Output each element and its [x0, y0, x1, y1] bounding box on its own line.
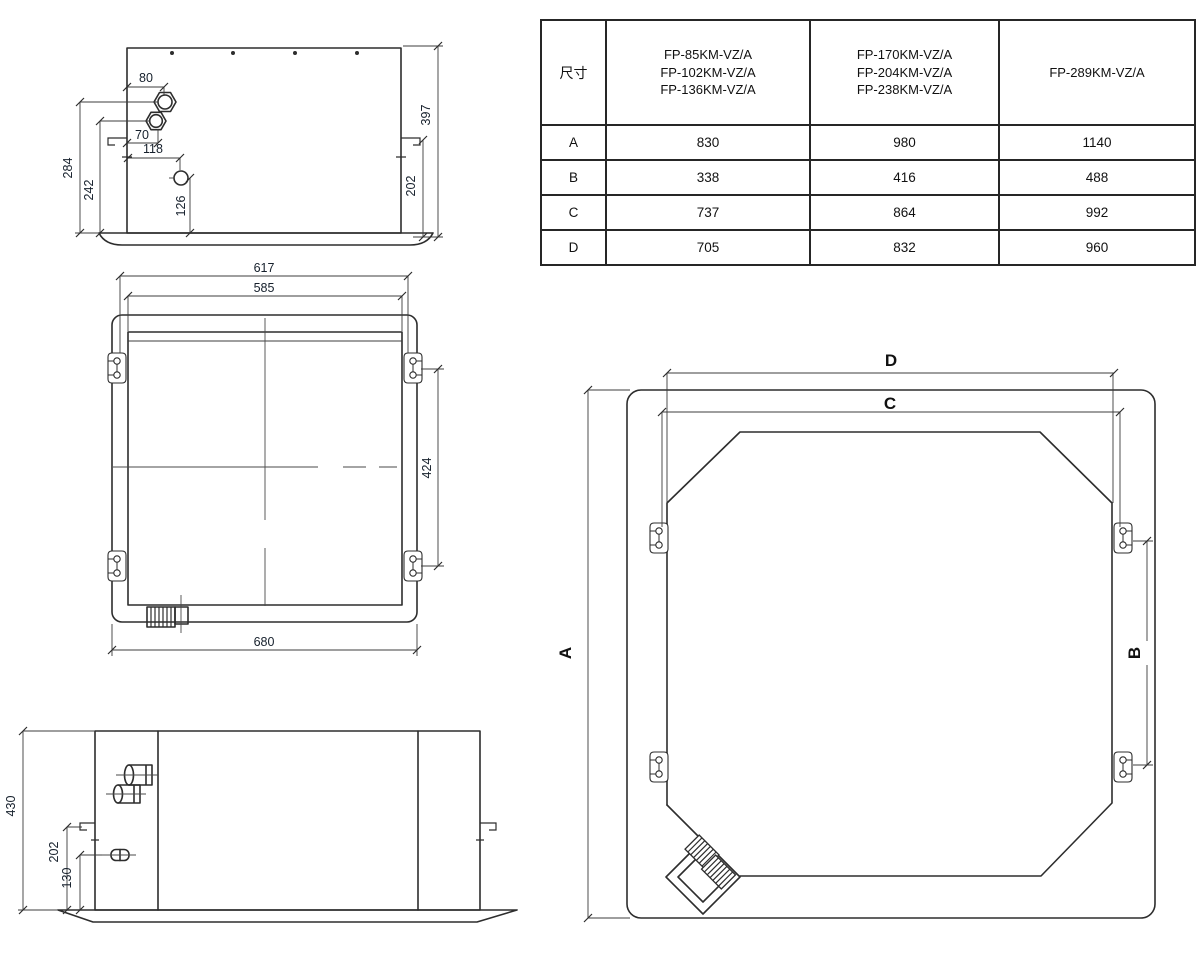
dim-424: 424 — [420, 458, 434, 479]
drain-connection-box — [666, 835, 740, 914]
table-model-group-3: FP-289KM-VZ/A — [999, 20, 1195, 125]
table-header-row: 尺寸 FP-85KM-VZ/A FP-102KM-VZ/A FP-136KM-V… — [541, 20, 1195, 125]
dimension-ticks — [584, 369, 1151, 922]
value-cell: 832 — [810, 230, 999, 265]
hanger-brackets-front — [80, 823, 496, 840]
value-cell: 992 — [999, 195, 1195, 230]
dim-585: 585 — [254, 281, 275, 295]
dim-242: 242 — [82, 180, 96, 201]
model-name: FP-204KM-VZ/A — [813, 64, 996, 82]
hanger-bracket-top-left — [108, 353, 126, 383]
hanger-bracket-bottom-left — [650, 752, 668, 782]
drain-pipe-fitting — [169, 171, 188, 185]
table-row-D: D 705 832 960 — [541, 230, 1195, 265]
model-name: FP-289KM-VZ/A — [1002, 64, 1192, 82]
drain-pipe-front — [100, 850, 136, 861]
body-section-lines — [158, 731, 418, 910]
dim-70: 70 — [135, 128, 149, 142]
dim-202-side: 202 — [404, 176, 418, 197]
unit-body-outline — [127, 48, 401, 233]
model-name: FP-170KM-VZ/A — [813, 46, 996, 64]
value-cell: 830 — [606, 125, 810, 160]
hanger-bracket-top-right — [1114, 523, 1132, 553]
label-dim-A: A — [556, 647, 575, 659]
model-name: FP-102KM-VZ/A — [609, 64, 807, 82]
hanger-dots — [170, 51, 359, 55]
table-corner-cell: 尺寸 — [541, 20, 606, 125]
dimension-lines-side-view — [75, 42, 443, 241]
model-name: FP-85KM-VZ/A — [609, 46, 807, 64]
dim-397: 397 — [419, 105, 433, 126]
label-dim-C: C — [884, 394, 896, 413]
drain-stub-plan — [147, 595, 188, 633]
label-dim-B: B — [1125, 647, 1144, 659]
hanger-bracket-top-right — [404, 353, 422, 383]
model-name: FP-238KM-VZ/A — [813, 81, 996, 99]
dimension-ticks — [108, 272, 442, 654]
value-cell: 416 — [810, 160, 999, 195]
row-label: A — [541, 125, 606, 160]
label-dim-D: D — [885, 351, 897, 370]
value-cell: 864 — [810, 195, 999, 230]
drawing-sheet: 80 70 118 126 284 242 397 202 — [0, 0, 1200, 956]
dim-80: 80 — [139, 71, 153, 85]
value-cell: 705 — [606, 230, 810, 265]
value-cell: 338 — [606, 160, 810, 195]
view-panel-plan: A D C B — [556, 351, 1155, 922]
dimension-ticks — [76, 42, 442, 241]
dim-617: 617 — [254, 261, 275, 275]
value-cell: 488 — [999, 160, 1195, 195]
view-side-pipes: 80 70 118 126 284 242 397 202 — [61, 42, 443, 245]
table-row-B: B 338 416 488 — [541, 160, 1195, 195]
unit-body-octagon — [667, 432, 1112, 876]
decorative-panel-outline — [627, 390, 1155, 918]
unit-body-front — [95, 731, 480, 910]
row-label: C — [541, 195, 606, 230]
dimension-lines-plan-view — [108, 272, 444, 656]
dimension-table: 尺寸 FP-85KM-VZ/A FP-102KM-VZ/A FP-136KM-V… — [540, 19, 1196, 266]
panel-cross-section-front — [58, 910, 517, 922]
corner-chamfer-line — [667, 805, 703, 841]
panel-cross-section — [99, 233, 433, 245]
table-model-group-1: FP-85KM-VZ/A FP-102KM-VZ/A FP-136KM-VZ/A — [606, 20, 810, 125]
dim-202-front: 202 — [47, 842, 61, 863]
view-front: 430 202 130 — [4, 727, 517, 922]
dim-126: 126 — [174, 196, 188, 217]
row-label: B — [541, 160, 606, 195]
dimension-lines-panel-view — [584, 369, 1153, 922]
dim-130: 130 — [60, 868, 74, 889]
hanger-bracket-bottom-left — [108, 551, 126, 581]
centerlines — [113, 318, 397, 606]
hanger-bracket-top-left — [650, 523, 668, 553]
hanger-bracket-bottom-right — [404, 551, 422, 581]
view-plan-unit: 617 585 424 680 — [108, 261, 444, 656]
table-row-A: A 830 980 1140 — [541, 125, 1195, 160]
model-name: FP-136KM-VZ/A — [609, 81, 807, 99]
table-row-C: C 737 864 992 — [541, 195, 1195, 230]
dim-430: 430 — [4, 796, 18, 817]
value-cell: 980 — [810, 125, 999, 160]
table-model-group-2: FP-170KM-VZ/A FP-204KM-VZ/A FP-238KM-VZ/… — [810, 20, 999, 125]
dim-680: 680 — [254, 635, 275, 649]
dim-284: 284 — [61, 158, 75, 179]
dimension-ticks — [19, 727, 84, 914]
value-cell: 1140 — [999, 125, 1195, 160]
water-pipes-front — [106, 765, 158, 803]
value-cell: 737 — [606, 195, 810, 230]
dim-118: 118 — [143, 142, 163, 156]
value-cell: 960 — [999, 230, 1195, 265]
panel-outline-plan — [112, 315, 417, 622]
row-label: D — [541, 230, 606, 265]
hanger-bracket-bottom-right — [1114, 752, 1132, 782]
